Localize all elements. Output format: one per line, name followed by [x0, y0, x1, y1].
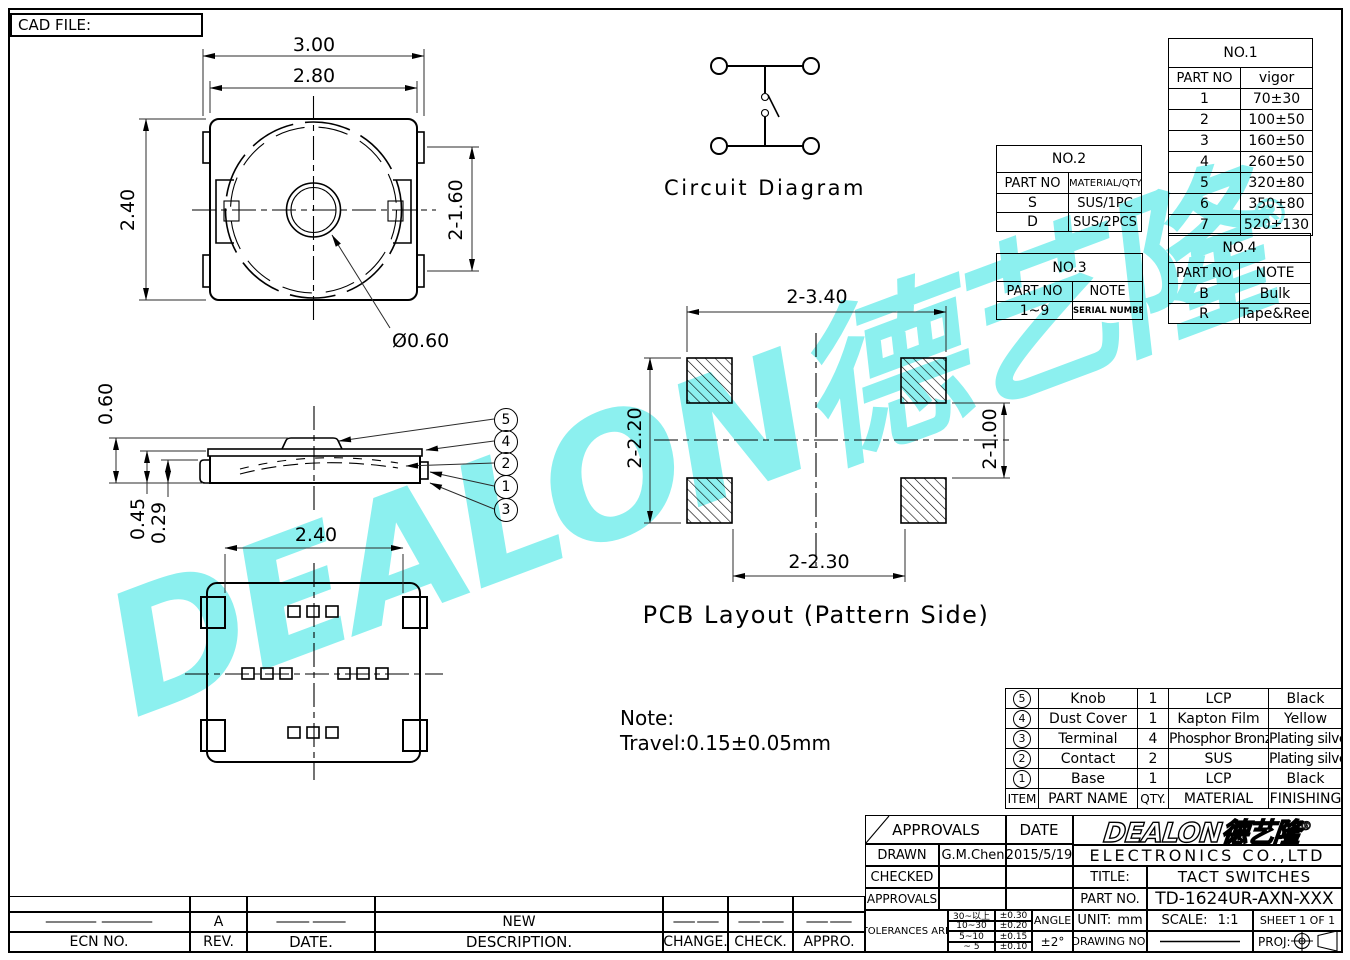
revision-empty-cell: [375, 896, 663, 912]
tolerance-range: 10~30: [948, 921, 995, 931]
date-header: DATE: [1005, 815, 1073, 844]
part-name: Knob: [1039, 689, 1138, 709]
table-cell: SUS/1PC: [1069, 194, 1142, 213]
table-header: NOTE: [1073, 282, 1143, 302]
dim-side-body-height: 0.45: [127, 488, 149, 550]
revision-date-value: ——: [247, 912, 375, 932]
finishing: Black: [1269, 689, 1343, 709]
table-cell: 350±80: [1241, 194, 1313, 215]
table-cell: Tape&Reel: [1240, 304, 1311, 324]
qty: 1: [1138, 769, 1169, 789]
company-logo: DEALON德艺隆®: [1073, 815, 1342, 845]
pcb-layout-label: PCB Layout (Pattern Side): [620, 601, 1012, 629]
angle-label: ANGLE: [1032, 910, 1073, 931]
table-header: QTY.: [1138, 789, 1169, 809]
material: LCP: [1169, 769, 1269, 789]
callout-balloon-base: 1: [494, 475, 518, 499]
dim-side-base-height: 0.29: [148, 492, 170, 554]
table-cell: 70±30: [1241, 89, 1313, 110]
tolerance-value: ±0.20: [995, 921, 1032, 931]
note-title: Note:: [620, 706, 674, 730]
dim-bottom-width: 2.40: [285, 524, 347, 546]
material: LCP: [1169, 689, 1269, 709]
dim-pcb-outer-height: 2-2.20: [624, 396, 646, 480]
table-cell: SERIAL NUMBER: [1073, 302, 1143, 320]
drawn-name: G.M.Chen: [939, 844, 1007, 866]
table-header: FINISHING: [1269, 789, 1343, 809]
table-cell: SUS/2PCS: [1069, 213, 1142, 232]
part-no-value: TD-1624UR-AXN-XXX: [1147, 888, 1342, 910]
checked-date: [1005, 866, 1073, 888]
top-view: [139, 49, 479, 328]
checked-label: CHECKED: [865, 866, 939, 888]
finishing: Plating silver: [1269, 729, 1343, 749]
table-title: NO.4: [1169, 234, 1311, 263]
qty: 1: [1138, 689, 1169, 709]
drawn-date: 2015/5/19: [1005, 844, 1073, 866]
finishing: Black: [1269, 769, 1343, 789]
table-header: PART NAME: [1039, 789, 1138, 809]
callout-balloon-knob: 5: [494, 408, 518, 432]
parts-table: 5 Knob 1 LCP Black 4 Dust Cover 1 Kapton…: [1005, 688, 1343, 809]
table-cell: 4: [1169, 152, 1241, 173]
drawing-no-label: DRAWING NO.: [1073, 931, 1147, 952]
revision-empty-cell: [663, 896, 728, 912]
qty: 4: [1138, 729, 1169, 749]
item-number: 2: [1006, 749, 1039, 769]
table-cell: 3: [1169, 131, 1241, 152]
table-header: vigor: [1241, 68, 1313, 89]
approvals-date: [1005, 888, 1073, 910]
table-cell: 1: [1169, 89, 1241, 110]
cad-file-box: CAD FILE:: [10, 13, 203, 37]
table-cell: D: [997, 213, 1069, 232]
table-cell: S: [997, 194, 1069, 213]
checked-name: [939, 866, 1007, 888]
finishing: Plating silver: [1269, 749, 1343, 769]
table-cell: Bulk: [1240, 284, 1311, 304]
circuit-diagram: [711, 58, 819, 154]
revision-description-value: NEW: [375, 912, 663, 932]
dim-pcb-inner-width: 2-2.30: [777, 551, 861, 573]
dim-side-total-height: 0.60: [95, 373, 117, 435]
table-cell: 100±50: [1241, 110, 1313, 131]
table-no1: NO.1 PART NOvigor 170±30 2100±50 3160±50…: [1168, 38, 1313, 236]
table-no2: NO.2 PART NOMATERIAL/QTY SSUS/1PC DSUS/2…: [996, 145, 1142, 232]
table-cell: 2: [1169, 110, 1241, 131]
tolerance-value: ±0.15: [995, 931, 1032, 942]
revision-header-description: DESCRIPTION.: [375, 932, 663, 952]
table-no4: NO.4 PART NONOTE BBulk RTape&Reel: [1168, 233, 1311, 324]
item-number: 1: [1006, 769, 1039, 789]
table-header: NOTE: [1240, 263, 1311, 284]
angle-value: ±2°: [1032, 931, 1073, 952]
table-header: PART NO: [1169, 263, 1240, 284]
table-cell: 1~9: [997, 302, 1073, 320]
table-header: ITEM: [1006, 789, 1039, 809]
part-no-label: PART NO.: [1073, 888, 1147, 910]
table-title: NO.1: [1169, 39, 1313, 68]
callout-balloon-dust-cover: 4: [494, 430, 518, 454]
approvals-name: [939, 888, 1007, 910]
table-header: PART NO: [997, 173, 1069, 194]
table-no3: NO.3 PART NONOTE 1~9SERIAL NUMBER: [996, 253, 1143, 320]
revision-rev-value: A: [190, 912, 247, 932]
item-number: 5: [1006, 689, 1039, 709]
title-value: TACT SWITCHES: [1147, 866, 1342, 888]
qty: 1: [1138, 709, 1169, 729]
dim-terminal-pitch: 2-1.60: [445, 177, 467, 243]
revision-check-value: ——: [728, 912, 793, 932]
table-cell: B: [1169, 284, 1240, 304]
title-label: TITLE:: [1073, 866, 1147, 888]
projection-cell: PROJ:: [1253, 931, 1342, 952]
item-number: 4: [1006, 709, 1039, 729]
table-cell: 5: [1169, 173, 1241, 194]
revision-ecn-value: ——: [8, 912, 190, 932]
callout-balloon-contact: 2: [494, 452, 518, 476]
revision-empty-cell: [728, 896, 793, 912]
pcb-layout: [644, 306, 1014, 582]
dim-top-body-width: 2.80: [283, 65, 345, 87]
drawing-no-value: [1147, 931, 1253, 952]
unit-cell: UNIT:mm: [1073, 910, 1147, 931]
material: Phosphor Bronze: [1169, 729, 1269, 749]
table-title: NO.2: [997, 146, 1142, 173]
part-name: Base: [1039, 769, 1138, 789]
tolerance-range: 5~10: [948, 931, 995, 942]
callout-balloon-terminal: 3: [494, 498, 518, 522]
table-header: PART NO: [1169, 68, 1241, 89]
table-cell: 6: [1169, 194, 1241, 215]
table-title: NO.3: [997, 254, 1143, 282]
part-name: Dust Cover: [1039, 709, 1138, 729]
company-name: ELECTRONICS CO.,LTD: [1073, 845, 1342, 866]
revision-empty-cell: [247, 896, 375, 912]
table-cell: 320±80: [1241, 173, 1313, 194]
drawing-sheet: DEALON德艺隆®: [0, 0, 1350, 960]
revision-header-check: CHECK.: [728, 932, 793, 952]
dim-top-height: 2.40: [117, 179, 139, 241]
revision-empty-cell: [8, 896, 190, 912]
registered-mark-icon: ®: [1300, 819, 1312, 833]
dim-top-outer-width: 3.00: [283, 34, 345, 56]
table-cell: R: [1169, 304, 1240, 324]
item-number: 3: [1006, 729, 1039, 749]
circuit-diagram-label: Circuit Diagram: [645, 176, 885, 200]
tolerance-value: ±0.30: [995, 910, 1032, 921]
revision-header-rev: REV.: [190, 932, 247, 952]
note-body: Travel:0.15±0.05mm: [620, 731, 831, 755]
revision-empty-cell: [793, 896, 865, 912]
approvals-label: APPROVALS: [865, 888, 939, 910]
table-header: MATERIAL: [1169, 789, 1269, 809]
qty: 2: [1138, 749, 1169, 769]
revision-header-appro: APPRO.: [793, 932, 865, 952]
drawn-label: DRAWN: [865, 844, 939, 866]
bottom-view: [185, 548, 443, 780]
revision-empty-cell: [190, 896, 247, 912]
dim-pcb-inner-height: 2-1.00: [979, 397, 1001, 481]
tolerances-label: TOLERANCES ARE: [865, 910, 948, 952]
revision-change-value: ——: [663, 912, 728, 932]
sheet-cell: SHEET 1 OF 1: [1253, 910, 1342, 931]
table-cell: 260±50: [1241, 152, 1313, 173]
tolerance-range: 30~以上: [948, 910, 995, 921]
material: SUS: [1169, 749, 1269, 769]
finishing: Yellow: [1269, 709, 1343, 729]
part-name: Contact: [1039, 749, 1138, 769]
table-header: MATERIAL/QTY: [1069, 173, 1142, 194]
scale-cell: SCALE:1:1: [1147, 910, 1253, 931]
revision-header-date: DATE.: [247, 932, 375, 952]
table-header: PART NO: [997, 282, 1073, 302]
approvals-header: APPROVALS: [865, 815, 1007, 844]
tolerance-value: ±0.10: [995, 942, 1032, 952]
dim-pcb-outer-width: 2-3.40: [775, 286, 859, 308]
material: Kapton Film: [1169, 709, 1269, 729]
table-cell: 160±50: [1241, 131, 1313, 152]
tolerance-range: ~ 5: [948, 942, 995, 952]
cad-file-label: CAD FILE:: [18, 16, 91, 34]
revision-appro-value: ——: [793, 912, 865, 932]
revision-header-change: CHANGE.: [663, 932, 728, 952]
dim-hole-diameter: Ø0.60: [392, 330, 449, 352]
revision-header-ecn: ECN NO.: [8, 932, 190, 952]
part-name: Terminal: [1039, 729, 1138, 749]
